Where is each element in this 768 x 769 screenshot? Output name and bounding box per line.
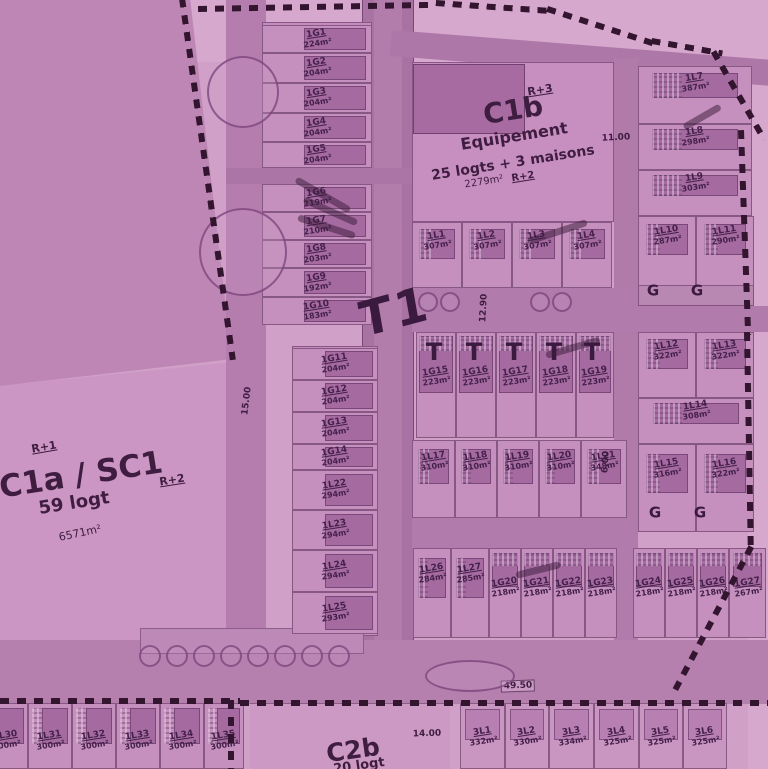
terrace-hatch [652, 73, 681, 99]
tree-circle [328, 645, 350, 667]
building-footprint [42, 708, 67, 744]
lot-area: 267m² [733, 586, 763, 599]
lot-1G25: 1G25218m² [665, 548, 697, 638]
building-footprint [510, 709, 544, 740]
lot-1L25: 1L25293m² [292, 592, 378, 634]
terrace-hatch [652, 129, 681, 149]
terrace-hatch [704, 454, 719, 494]
lot-1L22: 1L22294m² [292, 470, 378, 510]
lot-1G23: 1G23218m² [585, 548, 617, 638]
lot-1G11: 1G11204m² [292, 348, 378, 380]
tree-circle [247, 645, 269, 667]
tree-circle [552, 292, 572, 312]
lot-1L31: 1L31300m² [28, 703, 72, 769]
building-footprint [304, 271, 366, 294]
lot-3L3: 3L3334m² [549, 703, 594, 769]
tree-circle [301, 645, 323, 667]
terrace-hatch [704, 339, 719, 368]
lot-1L18: 1L18310m² [455, 440, 497, 518]
terrace-hatch [646, 224, 661, 255]
lot-1L14: 1L14308m² [638, 398, 754, 444]
lot-1G13: 1G13204m² [292, 412, 378, 444]
building-footprint [304, 28, 366, 50]
building-footprint [554, 709, 588, 740]
building-type-t-mark: T [466, 340, 482, 364]
lot-1L34: 1L34300m² [160, 703, 204, 769]
lot-1L17: 1L17310m² [412, 440, 455, 518]
terrace-hatch [668, 553, 693, 565]
terrace-hatch [569, 229, 581, 258]
site-plan-canvas: 1G1224m²1G2204m²1G3204m²1G4204m²1G5204m²… [0, 0, 768, 769]
lot-1L30: 1L30300m² [0, 703, 28, 769]
terrace-hatch [636, 553, 661, 565]
terrace-hatch [545, 449, 555, 484]
tree-circle [220, 645, 242, 667]
lot-1L20: 1L20310m² [539, 440, 581, 518]
terrace-hatch [492, 553, 517, 565]
lot-1L8: 1L8298m² [638, 124, 752, 170]
terrace-hatch [653, 403, 683, 423]
terrace-hatch [418, 558, 427, 598]
terrace-hatch [76, 708, 87, 744]
boundary-dash-segment [228, 700, 234, 769]
lot-3L5: 3L5325m² [639, 703, 683, 769]
building-type-t-mark: T [426, 340, 442, 364]
boundary-dash-segment [0, 698, 240, 704]
terrace-hatch [120, 708, 131, 744]
terrace-hatch [419, 229, 431, 258]
building-footprint [325, 383, 373, 409]
building-footprint [86, 708, 111, 744]
lot-1L24: 1L24294m² [292, 550, 378, 592]
lot-1L15: 1L15316m² [638, 444, 696, 532]
terrace-hatch [646, 339, 661, 368]
building-footprint [325, 447, 373, 467]
lot-1G14: 1G14204m² [292, 444, 378, 470]
tree-circle [193, 645, 215, 667]
building-footprint [325, 351, 373, 377]
lot-1L32: 1L32300m² [72, 703, 116, 769]
lots-layer: 1G1224m²1G2204m²1G3204m²1G4204m²1G5204m²… [0, 0, 768, 769]
building-footprint [325, 415, 373, 441]
lot-1L4: 1L4307m² [562, 222, 612, 288]
lot-1L26: 1L26284m² [413, 548, 451, 638]
terrace-hatch [700, 553, 725, 565]
garage-label: G [647, 284, 659, 299]
boundary-dash-segment [179, 0, 236, 360]
lot-area: 218m² [667, 586, 697, 599]
building-footprint [644, 709, 678, 740]
lot-1G10: 1G10183m² [262, 297, 372, 325]
garage-label: G [649, 506, 661, 521]
lot-1G1: 1G1224m² [262, 25, 372, 53]
terrace-hatch [461, 449, 471, 484]
building-footprint [304, 116, 366, 139]
boundary-dash-segment [436, 0, 551, 14]
dimension-label: 12.90 [478, 294, 489, 323]
building-footprint [130, 708, 155, 744]
tree-circle [425, 660, 515, 692]
building-footprint [688, 709, 722, 740]
lot-area: 218m² [587, 586, 617, 599]
lot-area: 218m² [523, 586, 553, 599]
lot-1L12: 1L12322m² [638, 332, 696, 398]
lot-1G21: 1G21218m² [521, 548, 553, 638]
building-type-t-mark: T [506, 340, 522, 364]
boundary-dash-segment [546, 6, 654, 46]
lot-1L9: 1L9303m² [638, 170, 752, 216]
lot-1L2: 1L2307m² [462, 222, 512, 288]
boundary-dash-segment [240, 700, 768, 706]
terrace-hatch [164, 708, 175, 744]
lot-1G24: 1G24218m² [633, 548, 665, 638]
building-footprint [599, 709, 633, 740]
tree-circle [207, 56, 279, 128]
building-footprint [465, 709, 499, 740]
dimension-label: 14.00 [413, 729, 442, 740]
lot-3L2: 3L2330m² [505, 703, 549, 769]
building-footprint [174, 708, 199, 744]
terrace-hatch [208, 708, 218, 744]
terrace-hatch [469, 229, 481, 258]
building-footprint [325, 596, 373, 630]
lot-area: 218m² [491, 586, 521, 599]
garage-label: G [694, 506, 706, 521]
building-footprint [304, 56, 366, 80]
building-footprint [325, 514, 373, 546]
lot-1L23: 1L23294m² [292, 510, 378, 550]
tree-circle [166, 645, 188, 667]
lot-area: 218m² [555, 586, 585, 599]
tree-circle [530, 292, 550, 312]
lot-1L35: 1L35300m² [204, 703, 244, 769]
lot-1G4: 1G4204m² [262, 113, 372, 142]
terrace-hatch [456, 558, 465, 598]
lot-3L6: 3L6325m² [683, 703, 727, 769]
building-footprint [304, 86, 366, 110]
lot-3L1: 3L1332m² [460, 703, 505, 769]
terrace-hatch [587, 449, 598, 484]
building-footprint [325, 554, 373, 588]
lot-1G5: 1G5204m² [262, 142, 372, 168]
lot-1G20: 1G20218m² [489, 548, 521, 638]
building-footprint [304, 243, 366, 265]
lot-3L4: 3L4325m² [594, 703, 639, 769]
tree-circle [139, 645, 161, 667]
lot-1L10: 1L10287m² [638, 216, 696, 286]
dimension-label: 11.00 [602, 132, 631, 143]
lot-1L33: 1L33300m² [116, 703, 160, 769]
terrace-hatch [646, 454, 661, 494]
building-footprint [0, 708, 24, 744]
terrace-hatch [704, 224, 719, 255]
terrace-hatch [503, 449, 513, 484]
lot-1G2: 1G2204m² [262, 53, 372, 83]
dimension-label: 6.00 [600, 451, 611, 474]
terrace-hatch [519, 229, 531, 258]
dimension-label: 15.00 [240, 386, 253, 415]
building-footprint [325, 474, 373, 506]
tree-circle [274, 645, 296, 667]
terrace-hatch [588, 553, 613, 565]
tree-circle [440, 292, 460, 312]
garage-label: G [691, 284, 703, 299]
terrace-hatch [652, 175, 681, 195]
building-footprint [304, 145, 366, 165]
lot-1G27: 1G27267m² [729, 548, 766, 638]
lot-area: 218m² [635, 586, 665, 599]
lot-1L27: 1L27285m² [451, 548, 489, 638]
terrace-hatch [32, 708, 43, 744]
lot-1G12: 1G12204m² [292, 380, 378, 412]
lot-1L19: 1L19310m² [497, 440, 539, 518]
boundary-dash-segment [198, 2, 433, 12]
terrace-hatch [418, 449, 429, 484]
